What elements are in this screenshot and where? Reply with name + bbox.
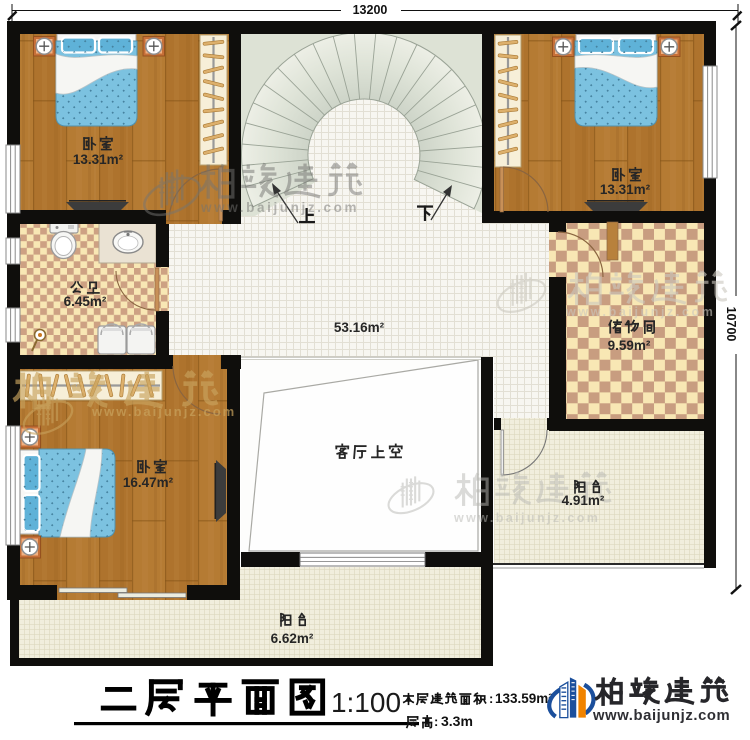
svg-text:53.16m²: 53.16m² bbox=[334, 320, 385, 335]
svg-text::: : bbox=[489, 691, 493, 706]
svg-text:www.baijunjz.com: www.baijunjz.com bbox=[200, 200, 359, 215]
svg-text:16.47m²: 16.47m² bbox=[123, 475, 174, 490]
svg-text:6.62m²: 6.62m² bbox=[271, 631, 314, 646]
svg-text:10700: 10700 bbox=[724, 307, 738, 342]
svg-text:13200: 13200 bbox=[353, 3, 388, 17]
svg-text:133.59m²: 133.59m² bbox=[495, 691, 553, 706]
svg-text:13.31m²: 13.31m² bbox=[73, 152, 124, 167]
svg-text:1:100: 1:100 bbox=[331, 687, 401, 718]
svg-text:www.baijunjz.com: www.baijunjz.com bbox=[91, 404, 236, 419]
svg-text:13.31m²: 13.31m² bbox=[600, 182, 651, 197]
svg-text:www.baijunjz.com: www.baijunjz.com bbox=[453, 511, 600, 525]
svg-text:4.91m²: 4.91m² bbox=[562, 493, 605, 508]
svg-text:3.3m: 3.3m bbox=[441, 713, 473, 729]
svg-text:www.baijunjz.com: www.baijunjz.com bbox=[565, 305, 715, 319]
svg-text::: : bbox=[434, 714, 438, 729]
svg-text:9.59m²: 9.59m² bbox=[608, 338, 651, 353]
svg-text:6.45m²: 6.45m² bbox=[64, 294, 107, 309]
svg-text:www.baijunjz.com: www.baijunjz.com bbox=[592, 708, 730, 724]
